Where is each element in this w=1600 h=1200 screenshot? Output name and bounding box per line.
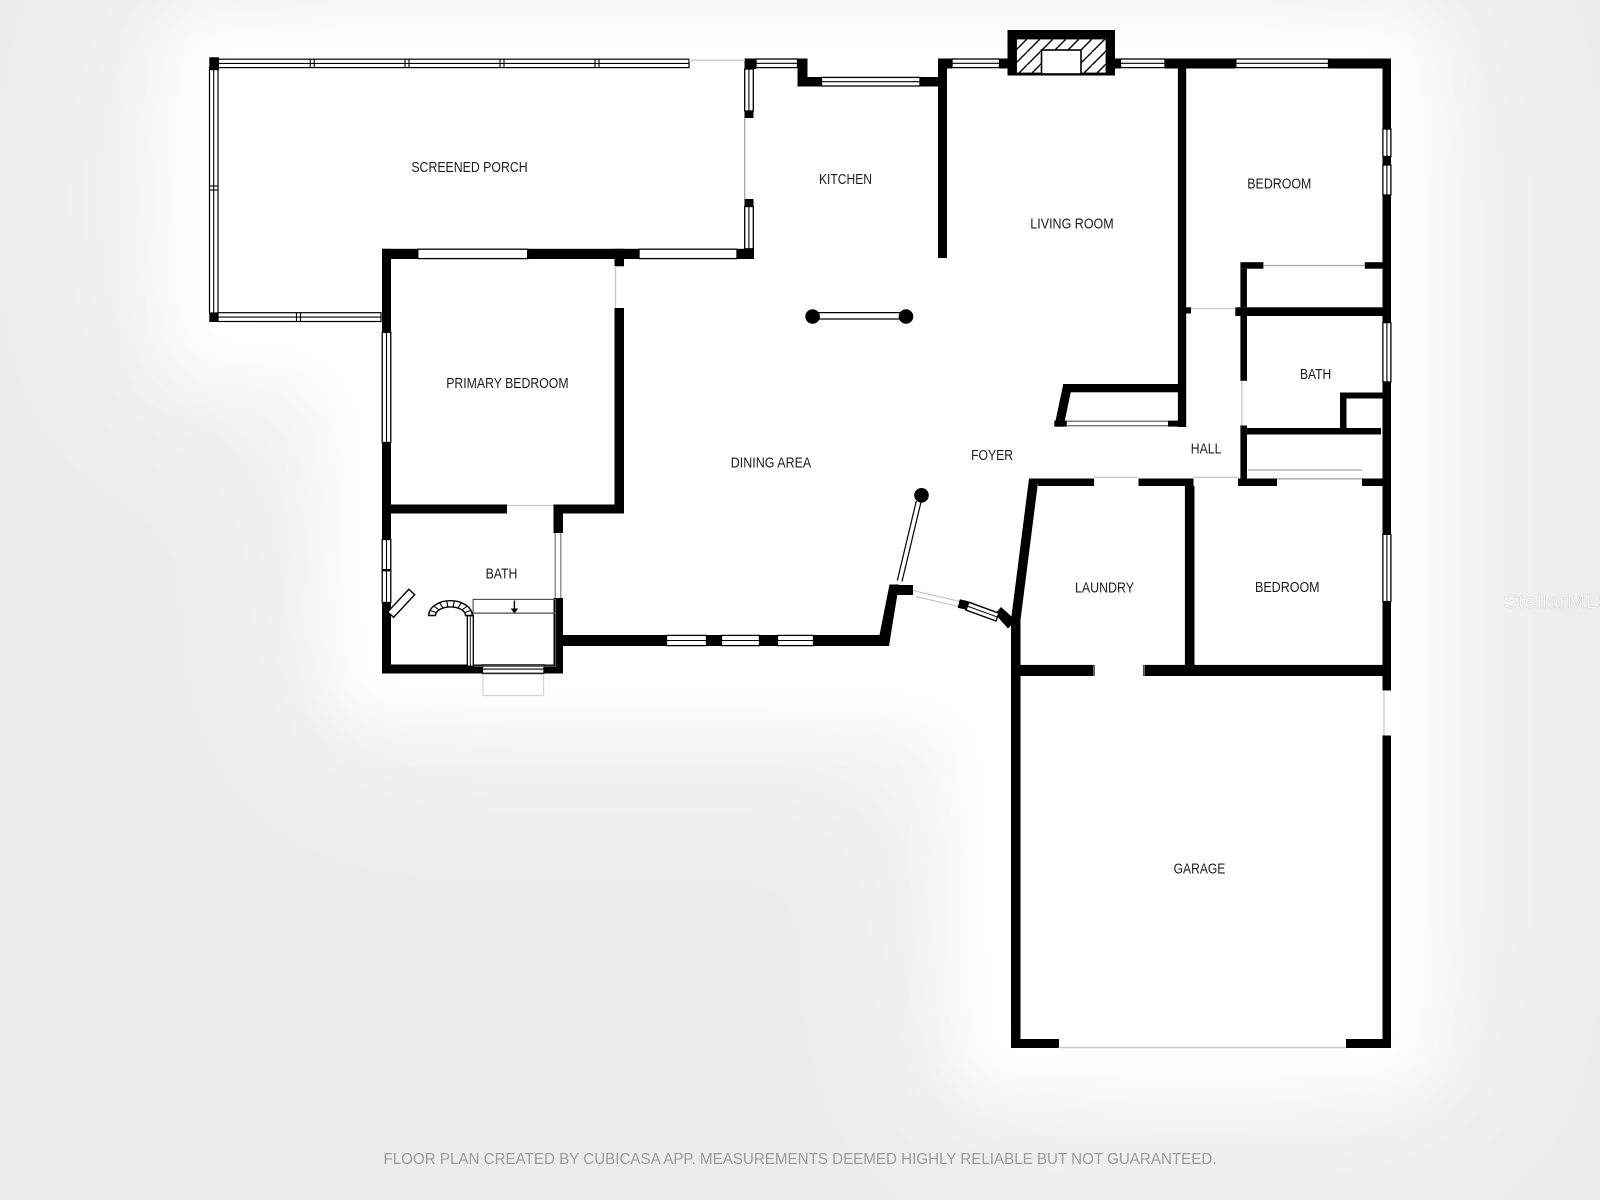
svg-text:LAUNDRY: LAUNDRY	[1075, 580, 1134, 596]
svg-text:SCREENED PORCH: SCREENED PORCH	[411, 160, 527, 176]
svg-text:KITCHEN: KITCHEN	[819, 172, 872, 188]
svg-text:GARAGE: GARAGE	[1174, 862, 1226, 878]
svg-text:StellarMLS: StellarMLS	[1503, 591, 1600, 613]
svg-text:FOYER: FOYER	[971, 448, 1013, 464]
svg-text:FLOOR PLAN CREATED BY CUBICASA: FLOOR PLAN CREATED BY CUBICASA APP. MEAS…	[384, 1151, 1217, 1168]
svg-text:BEDROOM: BEDROOM	[1247, 177, 1311, 193]
svg-text:PRIMARY BEDROOM: PRIMARY BEDROOM	[446, 376, 568, 392]
svg-text:HALL: HALL	[1191, 442, 1222, 458]
svg-text:BATH: BATH	[486, 566, 518, 582]
svg-text:DINING AREA: DINING AREA	[731, 456, 812, 472]
svg-text:BATH: BATH	[1300, 367, 1331, 383]
svg-text:LIVING ROOM: LIVING ROOM	[1030, 216, 1113, 232]
svg-text:BEDROOM: BEDROOM	[1255, 580, 1320, 596]
